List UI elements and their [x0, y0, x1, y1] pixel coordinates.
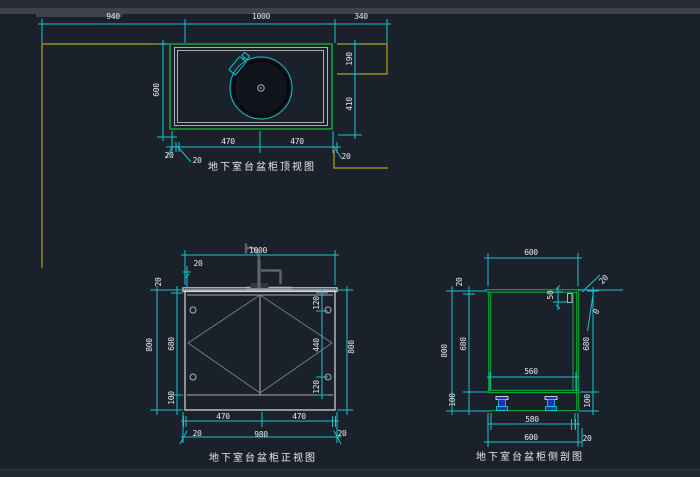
dim-label: 100: [584, 394, 592, 408]
dim-label: 20: [456, 277, 464, 286]
dim-label: 470: [216, 413, 230, 421]
dim-label: 560: [524, 368, 538, 376]
dim-label: 20: [582, 435, 591, 443]
top-view-title: 地下室台盆柜顶视图: [208, 163, 316, 173]
dim-label: 940: [106, 13, 120, 21]
leveling-foot: [496, 397, 508, 411]
dim-label: 120: [313, 380, 321, 394]
dim-label: 1000: [249, 247, 267, 255]
dim-label: 20: [164, 152, 173, 160]
dim-label: 100: [168, 391, 176, 405]
dim-label: 100: [449, 393, 457, 407]
door-knobs: [190, 307, 331, 380]
back-rail-section: [568, 294, 573, 303]
dim-label: 20: [192, 157, 201, 165]
dim-label: 600: [153, 83, 161, 97]
cabinet-section-outline: [485, 290, 581, 411]
dim-label: 1000: [252, 13, 270, 21]
wall-lines: [42, 44, 388, 268]
dim-label: 680: [168, 337, 176, 351]
dim-label: 470: [290, 138, 304, 146]
dim-label: 410: [346, 97, 354, 111]
dim-label: 470: [292, 413, 306, 421]
dim-label: 190: [346, 52, 354, 66]
dim-label: 980: [254, 431, 268, 439]
cad-drawing-canvas[interactable]: 940 1000 340 600 190 410 470 470 20 20 2…: [0, 0, 700, 477]
dim-label: 20: [155, 277, 163, 286]
dim-label: 20: [192, 430, 201, 438]
front-view-dimension-lines: [150, 250, 353, 444]
dim-label: 800: [441, 344, 449, 358]
side-view-title: 地下室台盆柜侧剖图: [476, 453, 584, 463]
dim-label: 20: [341, 153, 350, 161]
drawing-linework: [0, 0, 700, 477]
dim-label: 680: [460, 337, 468, 351]
dim-label: 50: [547, 290, 555, 299]
dim-label: 120: [313, 296, 321, 310]
dim-label: 20: [337, 430, 346, 438]
dim-label: 600: [524, 434, 538, 442]
dim-label: 580: [525, 416, 539, 424]
top-view-dimension-lines: [38, 19, 391, 162]
dim-label: 440: [313, 338, 321, 352]
top-view-linework: [38, 19, 391, 268]
front-view-linework: [150, 244, 353, 445]
leveling-foot: [545, 397, 557, 411]
dim-label: 600: [524, 249, 538, 257]
front-view-title: 地下室台盆柜正视图: [209, 454, 317, 464]
dim-label: 340: [354, 13, 368, 21]
dim-label: 20: [193, 260, 202, 268]
dim-label: 800: [348, 340, 356, 354]
dim-label: 680: [583, 337, 591, 351]
dim-label: 470: [221, 138, 235, 146]
dim-label: 800: [146, 338, 154, 352]
sink-basin-icon: [230, 57, 292, 119]
